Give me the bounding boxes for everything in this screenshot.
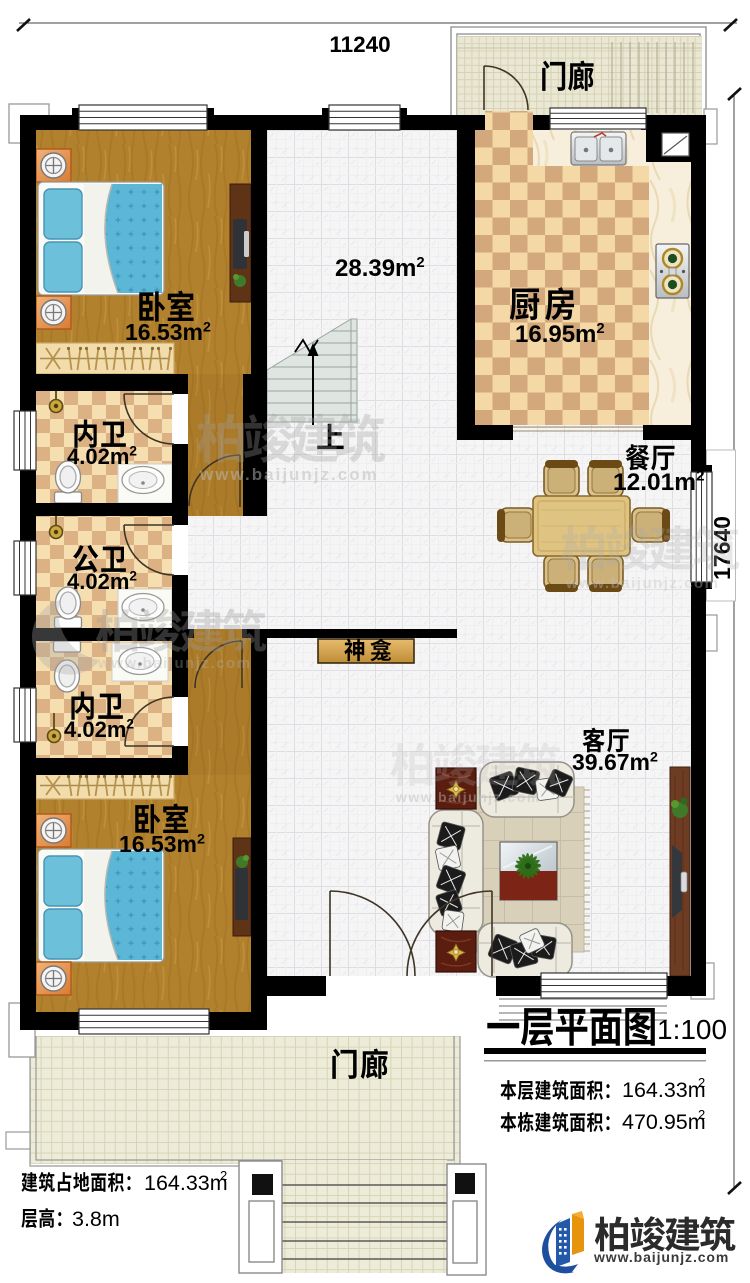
- svg-text:11240: 11240: [329, 32, 390, 57]
- svg-text:2: 2: [698, 1107, 705, 1122]
- svg-text:2: 2: [698, 1075, 705, 1090]
- svg-text:16.95m2: 16.95m2: [515, 321, 605, 348]
- svg-text:28.39m2: 28.39m2: [335, 255, 425, 282]
- svg-text:www.baijunjz.com: www.baijunjz.com: [199, 465, 379, 484]
- svg-text:4.02m2: 4.02m2: [64, 717, 134, 742]
- svg-text:16.53m2: 16.53m2: [119, 831, 205, 857]
- svg-text:4.02m2: 4.02m2: [67, 569, 137, 594]
- svg-text:12.01m2: 12.01m2: [613, 468, 705, 496]
- svg-text:470.95m: 470.95m: [622, 1110, 706, 1134]
- svg-text:164.33m: 164.33m: [622, 1078, 706, 1102]
- svg-text:www.baijunjz.com: www.baijunjz.com: [565, 575, 719, 592]
- svg-text:www.baijunjz.com: www.baijunjz.com: [593, 1249, 729, 1265]
- svg-text:2: 2: [220, 1168, 227, 1183]
- svg-text:16.53m2: 16.53m2: [125, 319, 211, 345]
- svg-text:1:100: 1:100: [657, 1014, 727, 1045]
- svg-text:3.8m: 3.8m: [72, 1207, 120, 1231]
- svg-text:39.67m2: 39.67m2: [572, 749, 658, 775]
- svg-text:www.baijunjz.com: www.baijunjz.com: [97, 655, 251, 672]
- svg-text:164.33m: 164.33m: [144, 1171, 228, 1195]
- svg-text:www.baijunjz.com: www.baijunjz.com: [395, 789, 541, 805]
- svg-text:4.02m2: 4.02m2: [67, 444, 137, 469]
